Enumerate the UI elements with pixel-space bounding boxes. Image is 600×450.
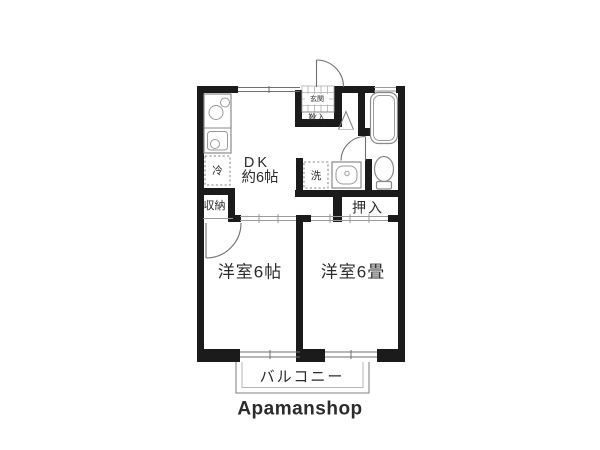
room-right-label: 洋室6畳: [321, 263, 385, 282]
wall-segment: [377, 349, 405, 362]
toilet-icon: [375, 157, 394, 190]
room-left-label: 洋室6帖: [218, 263, 282, 282]
wall-segment: [334, 86, 342, 127]
washing-machine-space: 洗: [304, 162, 328, 188]
fridge-label: 冷: [212, 164, 223, 177]
floor-plan: 玄関 靴入: [0, 0, 600, 450]
entrance-door-arc: [317, 60, 344, 87]
dk-label: DK: [244, 155, 270, 171]
storage-label: 収納: [204, 199, 226, 212]
floor-plan-page: 玄関 靴入: [0, 0, 600, 450]
wall-segment: [233, 215, 241, 222]
storage-door-arc: [206, 223, 241, 258]
dk-size-label: 約6帖: [241, 169, 278, 186]
entrance-label: 玄関: [310, 94, 324, 103]
wall-segment: [300, 349, 325, 362]
wall-segment: [197, 349, 240, 362]
wall-segment: [333, 190, 342, 222]
toilet-door-arc: [341, 136, 366, 160]
entrance-area: 玄関 靴入: [302, 86, 334, 123]
wall-segment: [398, 86, 405, 362]
shoe-box-label: 靴入: [308, 113, 326, 123]
washbasin-icon: [332, 162, 361, 188]
closet-label: 押入: [352, 200, 384, 216]
wall-segment: [295, 190, 405, 197]
refrigerator-space: 冷: [205, 156, 230, 185]
wall-segment: [197, 86, 204, 362]
balcony-label: バルコニー: [260, 369, 345, 386]
wall-segment: [296, 215, 303, 362]
kitchen-counter: [204, 94, 231, 153]
wall-segment: [388, 215, 405, 222]
brand-logo: Apamanshop: [237, 399, 362, 420]
balcony: バルコニー: [236, 362, 369, 393]
bathtub-icon: [371, 93, 398, 144]
laundry-label: 洗: [311, 170, 322, 182]
wall-segment: [365, 159, 372, 191]
